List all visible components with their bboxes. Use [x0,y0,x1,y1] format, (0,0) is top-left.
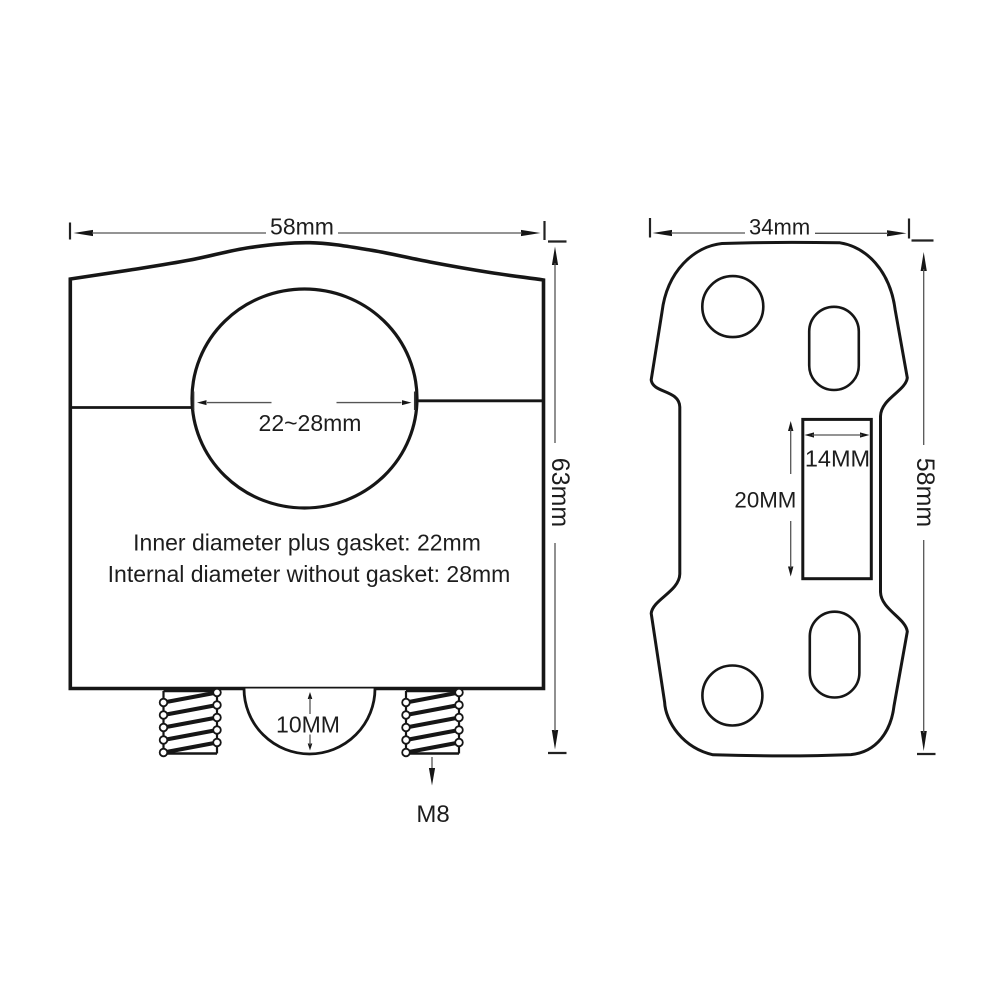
svg-text:34mm: 34mm [749,214,810,239]
svg-text:63mm: 63mm [546,458,574,527]
svg-text:22~28mm: 22~28mm [259,410,362,436]
svg-text:M8: M8 [416,801,449,828]
svg-text:58mm: 58mm [270,213,334,239]
svg-text:58mm: 58mm [911,458,939,527]
svg-text:10MM: 10MM [276,712,340,738]
svg-text:20MM: 20MM [734,488,796,513]
svg-text:Inner diameter plus gasket: 22: Inner diameter plus gasket: 22mm [133,530,481,556]
svg-text:14MM: 14MM [805,446,870,472]
svg-text:Internal diameter without gask: Internal diameter without gasket: 28mm [108,561,511,587]
